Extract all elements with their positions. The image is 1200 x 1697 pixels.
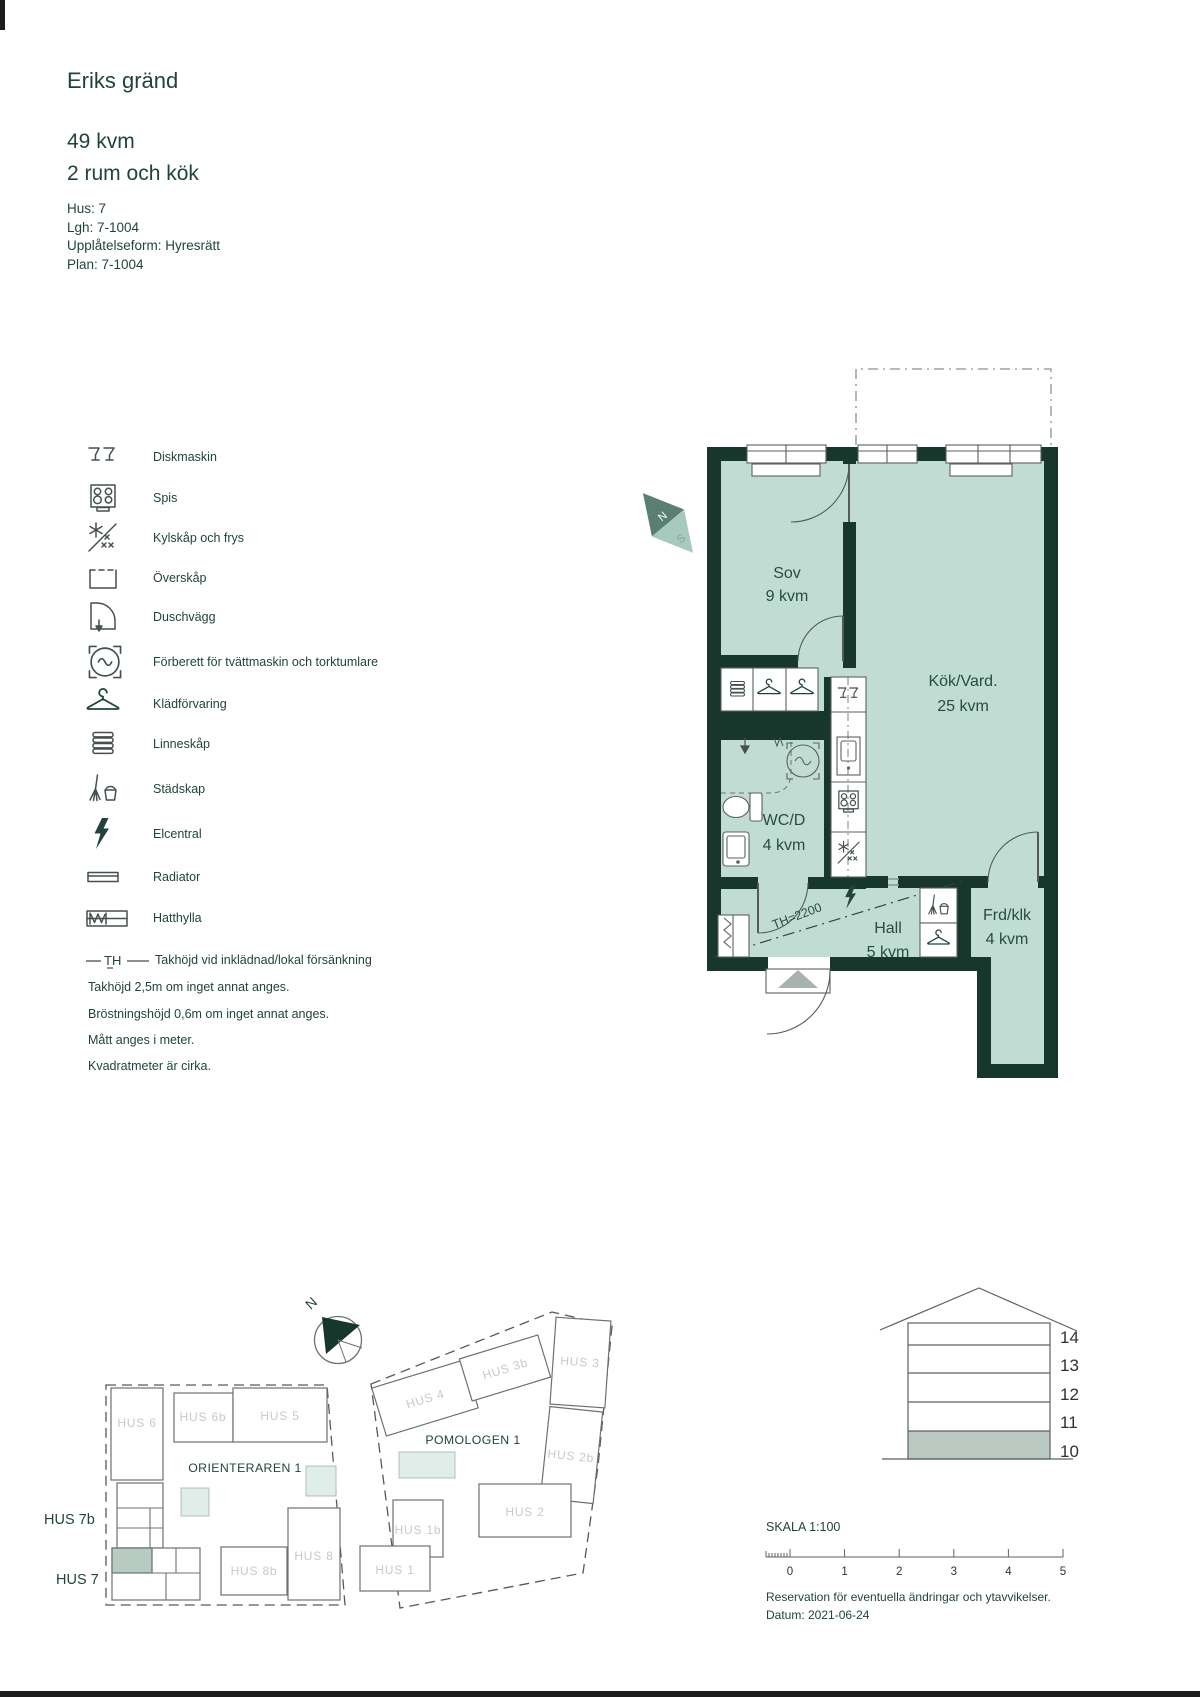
label-hus8: HUS 8 (294, 1549, 333, 1563)
highlighted-unit (112, 1548, 152, 1573)
scale-label: SKALA 1:100 (766, 1520, 840, 1534)
floor-plan: Sov 9 kvm Kök/Vard. 25 kvm WC/D 4 kvm Ha… (600, 320, 1200, 1100)
closet-row (721, 668, 818, 711)
legend-label: Diskmaskin (153, 450, 217, 464)
legend-row-kladforvaring: Klädförvaring (85, 684, 227, 724)
north-arrow: N S (627, 480, 709, 567)
building-hus4: HUS 4 (372, 1360, 478, 1436)
apartment-size: 49 kvm (67, 126, 135, 158)
page-bottom-border (0, 1691, 1200, 1697)
legend-row-diskmaskin: Diskmaskin (85, 437, 217, 477)
hat-shelf-icon (85, 900, 131, 936)
label-hus5: HUS 5 (260, 1409, 299, 1423)
legend-row-th: TH Takhöjd vid inklädnad/lokal försänkni… (85, 940, 372, 980)
label-hus6: HUS 6 (117, 1416, 156, 1430)
info-lgh: Lgh: 7-1004 (67, 219, 220, 238)
legend-label: Radiator (153, 870, 200, 884)
window-balcony-left (858, 445, 917, 463)
legend-label: Förberett för tvättmaskin och torktumlar… (153, 655, 378, 669)
legend-row-kylskap: Kylskåp och frys (85, 518, 244, 558)
floor-label: 13 (1060, 1356, 1079, 1375)
label-hus1: HUS 1 (375, 1563, 414, 1577)
scale-tick: 4 (1005, 1566, 1012, 1578)
highlighted-floor (908, 1431, 1050, 1459)
building-hus6 (111, 1388, 163, 1480)
building-hus7b (117, 1483, 163, 1548)
room-label-kok: Kök/Vard. (928, 673, 997, 690)
scale-ruler (766, 1549, 1063, 1557)
cleaning-cabinet-icon (85, 771, 131, 807)
elevation-and-scale: 14 13 12 11 10 SKALA 1:100 0 1 2 3 4 (760, 1270, 1200, 1650)
legend-row-radiator: Radiator (85, 857, 200, 897)
kitchen-counter (831, 677, 866, 877)
radiator-under-window (752, 464, 820, 476)
radiator-under-window (950, 464, 1012, 476)
hall-closet (920, 923, 957, 957)
page-title: Eriks gränd (67, 68, 178, 94)
legend-label: Klädförvaring (153, 697, 227, 711)
building-hus7 (112, 1548, 200, 1600)
legend-row-overskap: Överskåp (85, 558, 207, 598)
site-plan: N (30, 1190, 640, 1680)
scale-numbers: 0 1 2 3 4 5 (787, 1566, 1066, 1578)
apartment-info: Hus: 7 Lgh: 7-1004 Upplåtelseform: Hyres… (67, 200, 220, 274)
building-hus3: HUS 3 (550, 1317, 611, 1408)
datum-text: Datum: 2021-06-24 (766, 1608, 870, 1622)
scale-tick: 3 (951, 1566, 957, 1578)
room-label-hall: Hall (874, 920, 902, 937)
floor-label: 10 (1060, 1442, 1079, 1461)
wc-sink (723, 832, 749, 866)
note-takhojd: Takhöjd 2,5m om inget annat anges. (88, 980, 290, 994)
courtyard-square (181, 1488, 209, 1516)
reservation-text: Reservation för eventuella ändringar och… (766, 1590, 1051, 1604)
legend-row-hatthylla: Hatthylla (85, 898, 202, 938)
label-pomologen: POMOLOGEN 1 (425, 1433, 520, 1447)
info-plan: Plan: 7-1004 (67, 256, 220, 275)
legend-label: Spis (153, 491, 177, 505)
label-hus2: HUS 2 (505, 1505, 544, 1519)
clothes-storage-icon (85, 686, 131, 722)
floor-label: 11 (1060, 1413, 1078, 1432)
legend-label: Hatthylla (153, 911, 202, 925)
legend-row-duschvagg: Duschvägg (85, 597, 216, 637)
floor-label: 14 (1060, 1328, 1079, 1347)
window-sov (747, 445, 826, 476)
radiator-icon (85, 859, 131, 895)
room-label-wc: WC/D (763, 812, 806, 829)
room-label-frd: Frd/klk (983, 907, 1032, 924)
label-hus1b: HUS 1b (395, 1523, 442, 1537)
shower-wall-icon (85, 599, 131, 635)
page-corner-mark (0, 0, 5, 30)
legend-row-washer-prep: Förberett för tvättmaskin och torktumlar… (85, 642, 378, 682)
pomologen-buildings: HUS 4 HUS 3b HUS 3 HUS 2b HUS 2 HUS 1b (360, 1317, 611, 1591)
apartment-floor (707, 447, 1058, 1078)
floor-numbers: 14 13 12 11 10 (1060, 1328, 1079, 1461)
legend-label: Duschvägg (153, 610, 216, 624)
courtyard-rect (399, 1452, 455, 1478)
label-orienteraren: ORIENTERAREN 1 (188, 1461, 302, 1475)
room-area-sov: 9 kvm (766, 588, 809, 605)
entrance-door (766, 957, 830, 1034)
legend-label: Kylskåp och frys (153, 531, 244, 545)
floorplan-document: Eriks gränd 49 kvm 2 rum och kök Hus: 7 … (0, 0, 1200, 1697)
scale-tick: 1 (841, 1566, 847, 1578)
room-area-frd: 4 kvm (986, 931, 1029, 948)
courtyard-square (306, 1466, 336, 1496)
legend-label: Städskap (153, 782, 205, 796)
label-hus3: HUS 3 (560, 1354, 600, 1371)
room-area-wc: 4 kvm (763, 837, 806, 854)
label-hus7b: HUS 7b (44, 1512, 95, 1528)
label-hus7: HUS 7 (56, 1572, 99, 1588)
legend-row-linneskap: Linneskåp (85, 724, 210, 764)
legend-row-stadskap: Städskap (85, 769, 205, 809)
scale-tick: 2 (896, 1566, 902, 1578)
electrical-panel-icon (85, 816, 131, 852)
legend-label: Linneskåp (153, 737, 210, 751)
label-hus8b: HUS 8b (231, 1564, 278, 1578)
legend-label: Elcentral (153, 827, 202, 841)
building-hus3b: HUS 3b (459, 1335, 550, 1401)
building-hus2: HUS 2 (479, 1484, 571, 1537)
legend-label: Takhöjd vid inklädnad/lokal försänkning (155, 953, 372, 967)
info-hus: Hus: 7 (67, 200, 220, 219)
scale-tick: 0 (787, 1566, 793, 1578)
info-upplatelseform: Upplåtelseform: Hyresrätt (67, 237, 220, 256)
hat-shelf (718, 915, 749, 957)
dishwasher-icon (85, 439, 131, 475)
building-elevation (880, 1288, 1077, 1459)
room-area-kok: 25 kvm (937, 698, 989, 715)
site-north-arrow: N (302, 1294, 362, 1364)
legend-label: Överskåp (153, 571, 207, 585)
wall-cabinet-icon (85, 560, 131, 596)
note-brostningshojd: Bröstningshöjd 0,6m om inget annat anges… (88, 1007, 329, 1021)
stove-icon (85, 480, 131, 516)
room-label-sov: Sov (773, 565, 801, 582)
legend-row-spis: Spis (85, 478, 177, 518)
linen-cabinet-icon (85, 726, 131, 762)
note-matt: Mått anges i meter. (88, 1033, 194, 1047)
roof (880, 1288, 1077, 1331)
room-area-hall: 5 kvm (867, 944, 910, 961)
th-symbol-text: TH (104, 953, 121, 968)
balcony-outline (856, 369, 1051, 445)
apartment-rooms: 2 rum och kök (67, 158, 199, 190)
site-north-label: N (302, 1294, 320, 1313)
ceiling-height-symbol: TH (85, 948, 153, 972)
scale-tick: 5 (1060, 1566, 1066, 1578)
fridge-freezer-icon (85, 520, 131, 556)
legend-row-elcentral: Elcentral (85, 814, 202, 854)
note-kvadratmeter: Kvadratmeter är cirka. (88, 1059, 211, 1073)
building-hus1: HUS 1 (360, 1546, 430, 1591)
washer-prep-icon (85, 642, 131, 682)
label-hus6b: HUS 6b (180, 1410, 227, 1424)
floor-label: 12 (1060, 1385, 1079, 1404)
cleaning-cabinet (920, 888, 957, 923)
